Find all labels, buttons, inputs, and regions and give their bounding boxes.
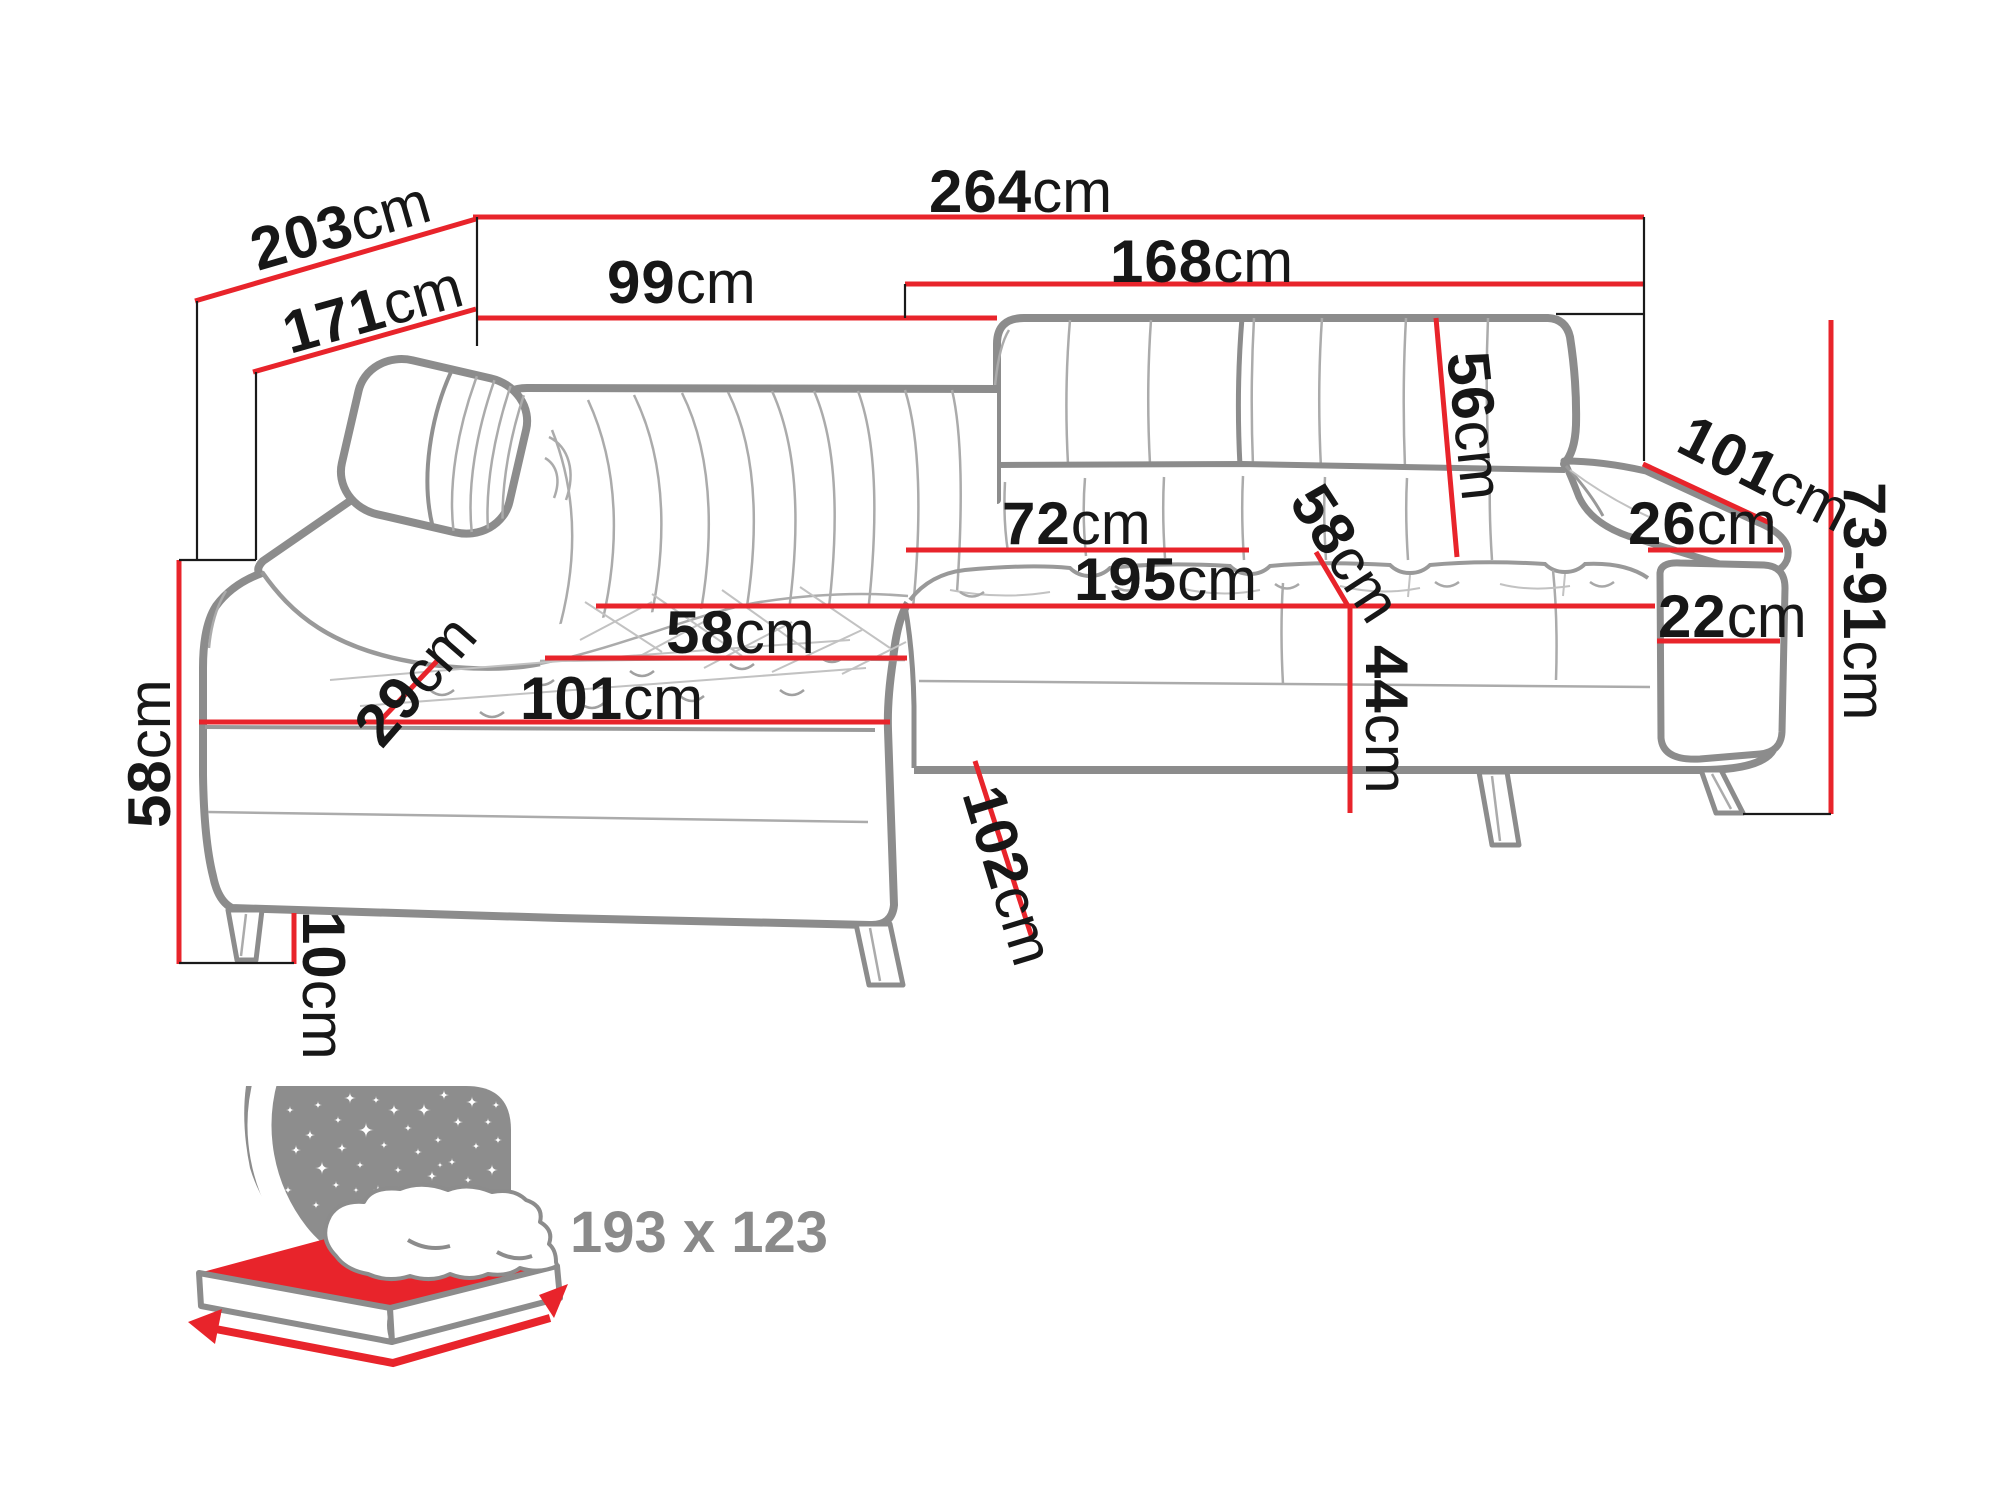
svg-text:73-91cm: 73-91cm [1831, 482, 1898, 720]
svg-text:22cm: 22cm [1658, 583, 1807, 650]
svg-text:168cm: 168cm [1110, 228, 1293, 295]
svg-text:264cm: 264cm [929, 158, 1112, 225]
svg-text:58cm: 58cm [116, 679, 183, 828]
svg-text:99cm: 99cm [607, 249, 756, 316]
svg-text:193 x 123: 193 x 123 [570, 1200, 828, 1265]
svg-text:26cm: 26cm [1628, 490, 1777, 557]
svg-text:195cm: 195cm [1074, 546, 1257, 613]
svg-text:10cm: 10cm [290, 911, 357, 1060]
svg-text:44cm: 44cm [1353, 645, 1420, 794]
svg-text:101cm: 101cm [520, 665, 703, 732]
svg-text:58cm: 58cm [666, 599, 815, 666]
